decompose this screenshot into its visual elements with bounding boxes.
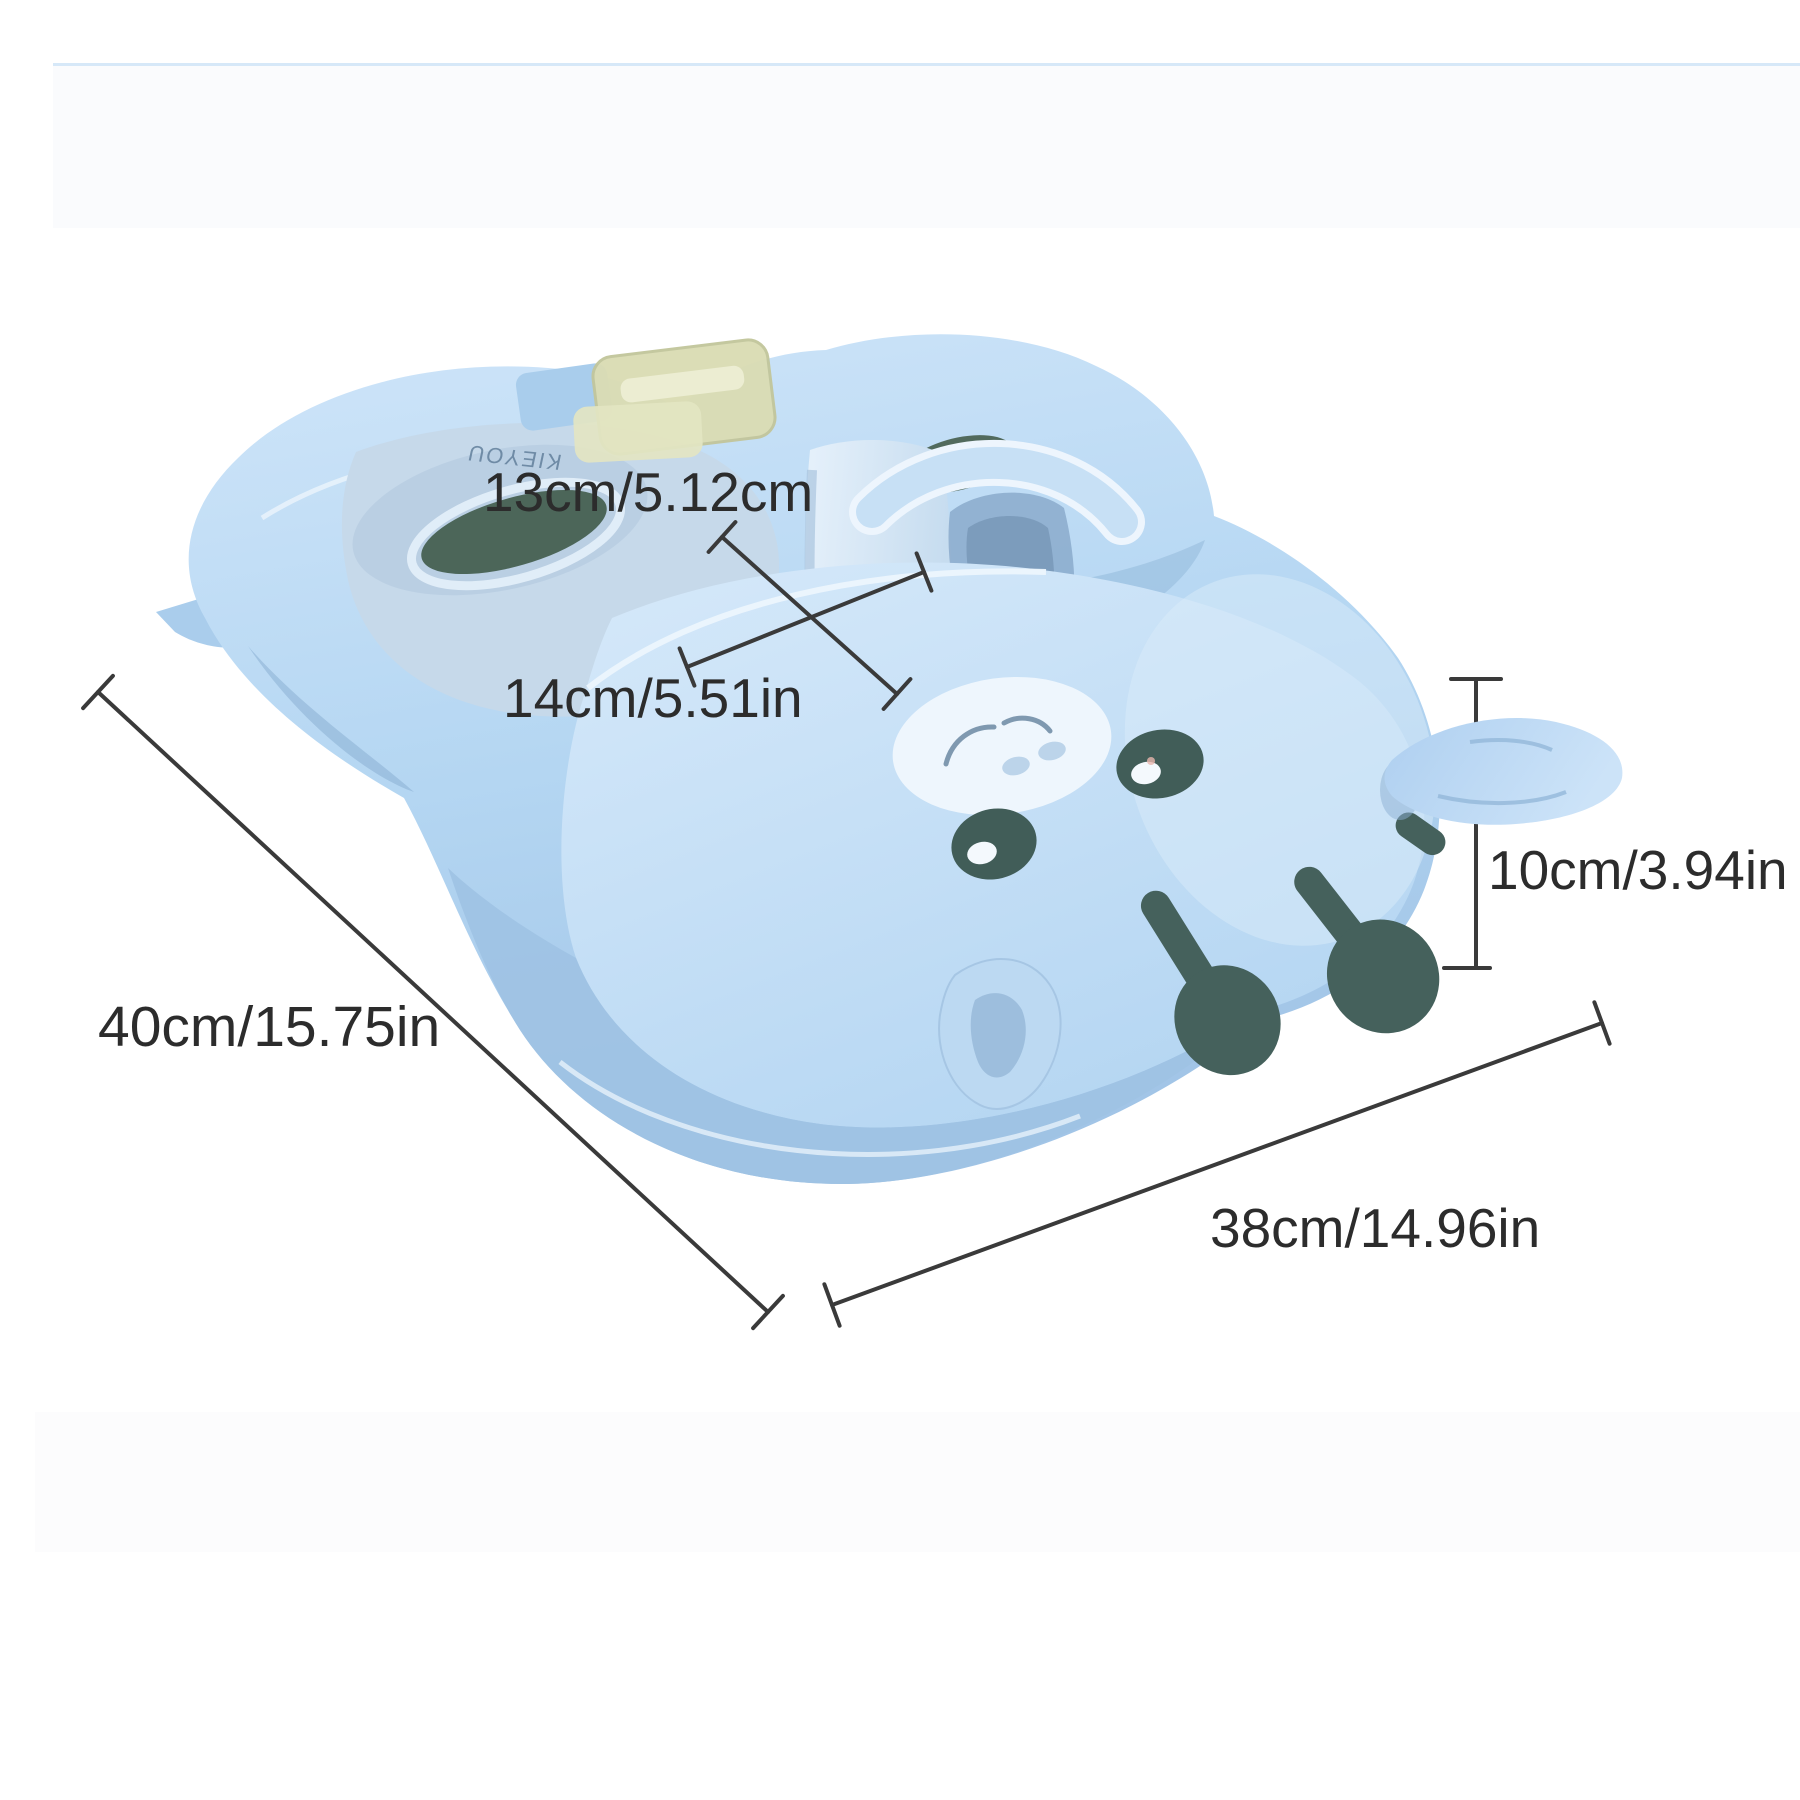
dimension-label-strap-width: 13cm/5.12cm [483, 462, 813, 523]
dimension-label-seat-width: 14cm/5.51in [503, 668, 803, 729]
product-dimension-diagram: KIEYOU 13cm/5.12cm 14cm/5.51in 10cm/3.94… [0, 0, 1800, 1800]
dimension-label-length: 40cm/15.75in [98, 996, 440, 1059]
dimension-label-height: 10cm/3.94in [1488, 840, 1788, 901]
dimension-label-width: 38cm/14.96in [1210, 1198, 1540, 1259]
right-eye-glint [1147, 757, 1155, 765]
